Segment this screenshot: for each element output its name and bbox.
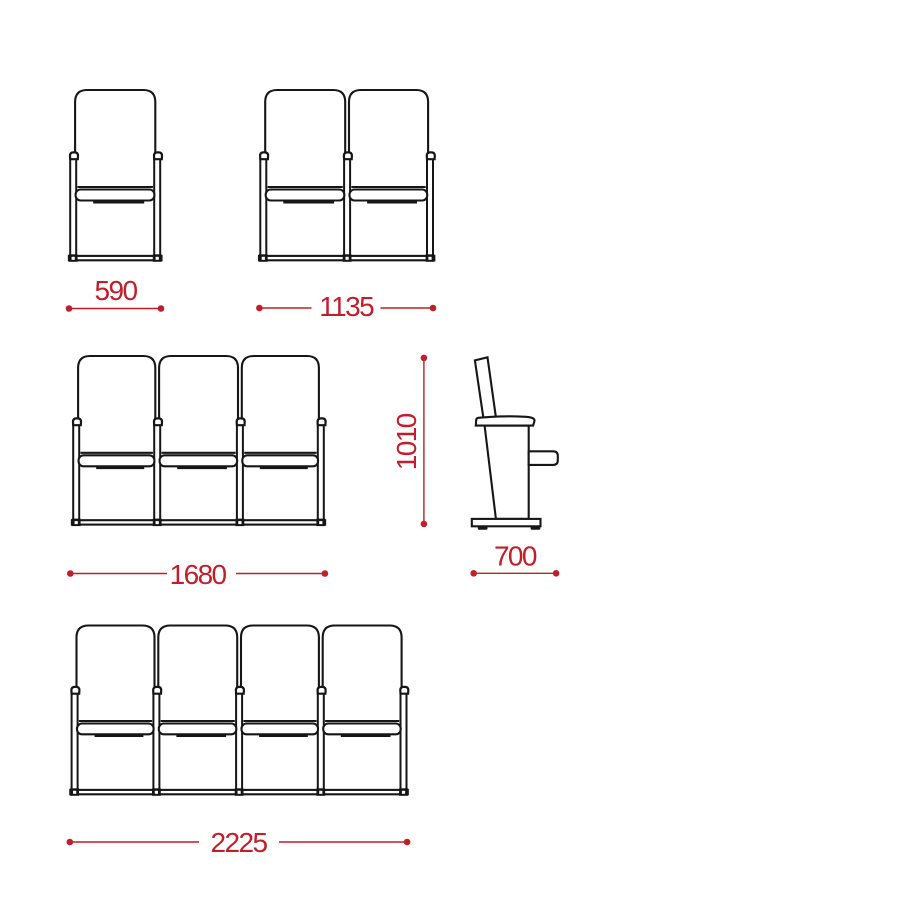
svg-text:1680: 1680 bbox=[170, 559, 227, 590]
svg-text:700: 700 bbox=[494, 541, 537, 572]
svg-text:1010: 1010 bbox=[391, 413, 422, 470]
svg-text:590: 590 bbox=[95, 275, 138, 306]
svg-text:1135: 1135 bbox=[319, 291, 374, 322]
svg-text:2225: 2225 bbox=[211, 827, 268, 858]
